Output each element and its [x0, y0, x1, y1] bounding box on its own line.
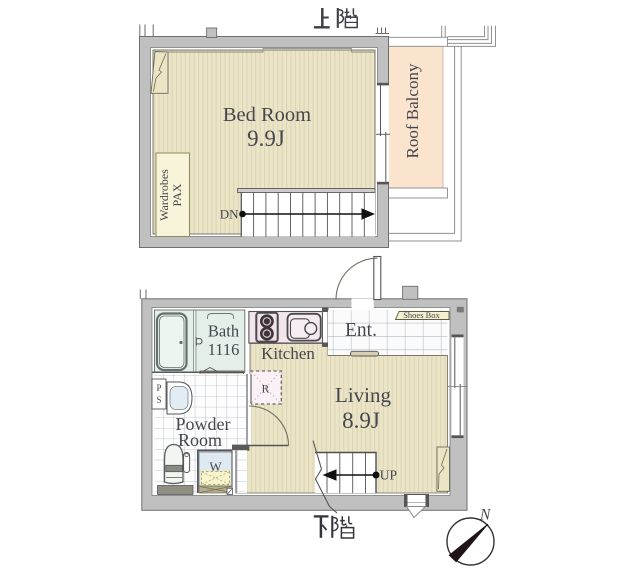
svg-text:W: W [209, 459, 222, 474]
svg-text:S: S [156, 395, 161, 405]
svg-text:9.9J: 9.9J [247, 126, 285, 151]
svg-text:1116: 1116 [208, 340, 240, 359]
svg-text:DN: DN [220, 207, 239, 222]
svg-text:Living: Living [335, 383, 391, 407]
svg-text:Roof Balcony: Roof Balcony [403, 63, 422, 158]
svg-text:R: R [262, 383, 270, 395]
svg-text:8.9J: 8.9J [342, 408, 380, 433]
svg-text:P: P [156, 383, 161, 393]
svg-text:Wardrobes: Wardrobes [157, 169, 171, 221]
svg-text:Kitchen: Kitchen [261, 344, 315, 363]
svg-text:UP: UP [380, 468, 397, 483]
svg-text:Room: Room [178, 430, 222, 450]
svg-text:N: N [479, 507, 492, 524]
svg-text:Bed Room: Bed Room [223, 104, 311, 126]
svg-text:PAX: PAX [170, 183, 184, 206]
svg-text:Shoes Box: Shoes Box [403, 310, 440, 320]
svg-text:Ent.: Ent. [345, 320, 377, 341]
svg-text:Bath: Bath [208, 322, 240, 341]
